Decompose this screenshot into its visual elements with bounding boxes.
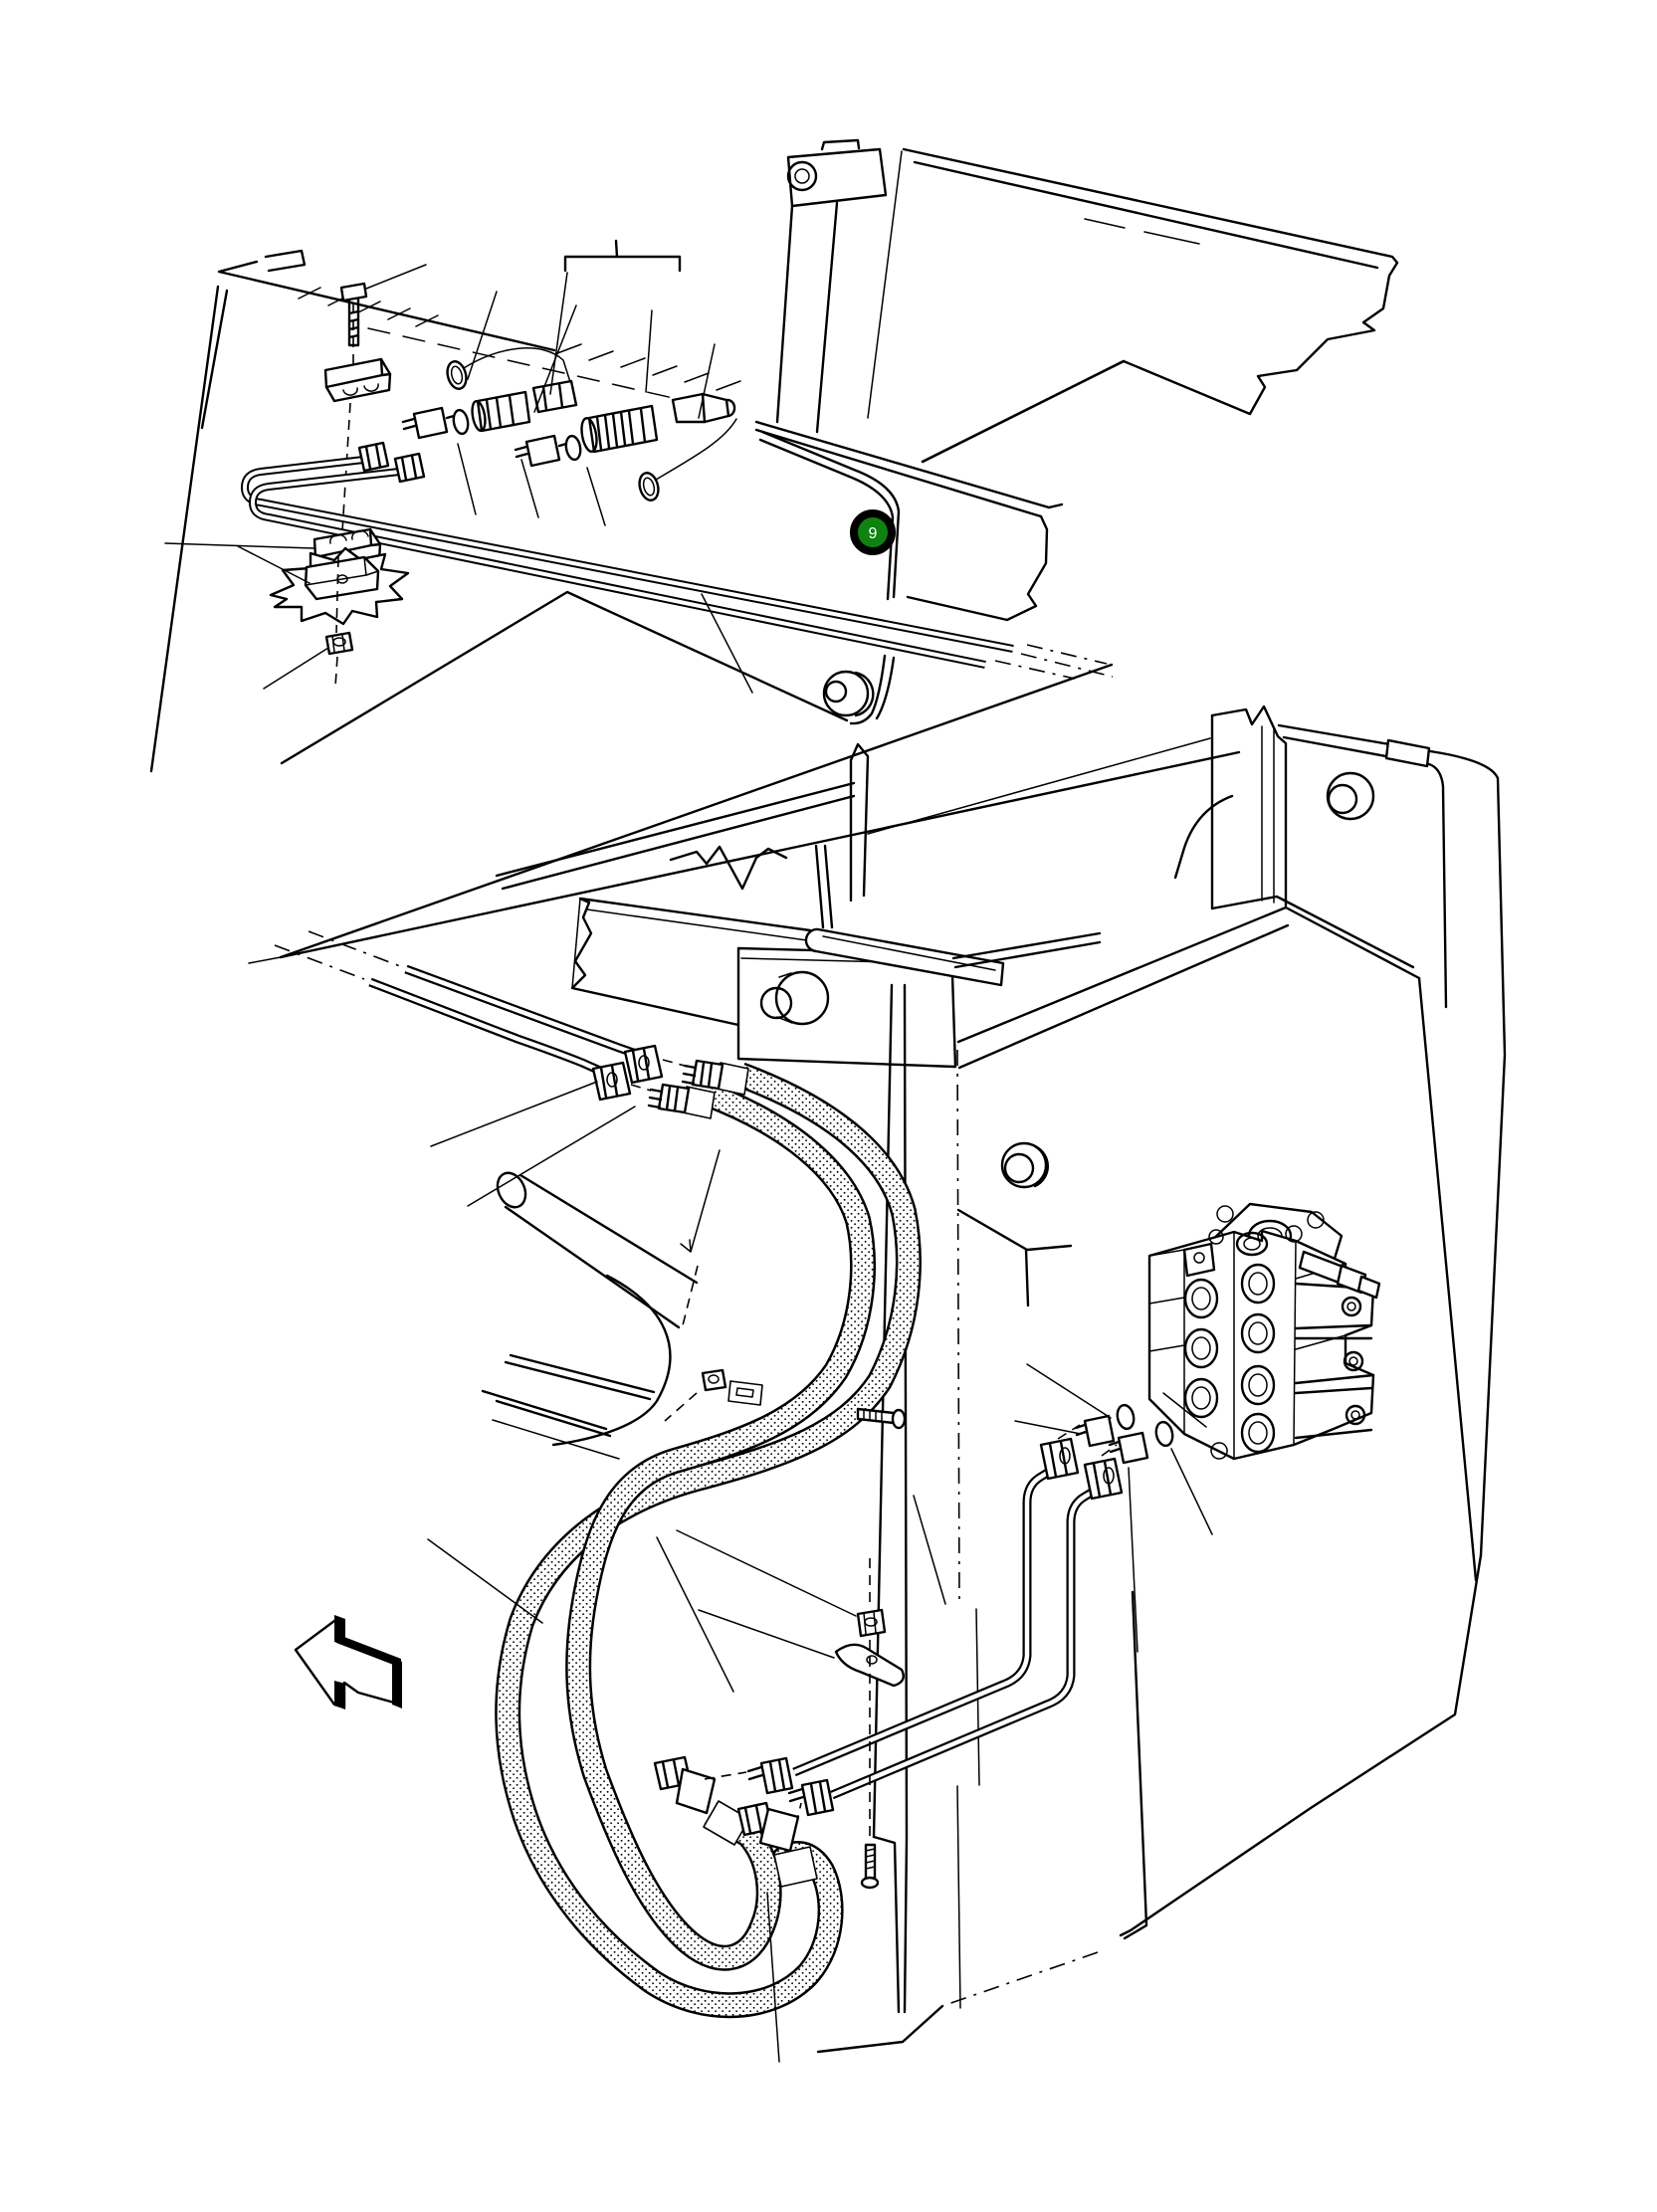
svg-text:9: 9 [869, 525, 878, 542]
